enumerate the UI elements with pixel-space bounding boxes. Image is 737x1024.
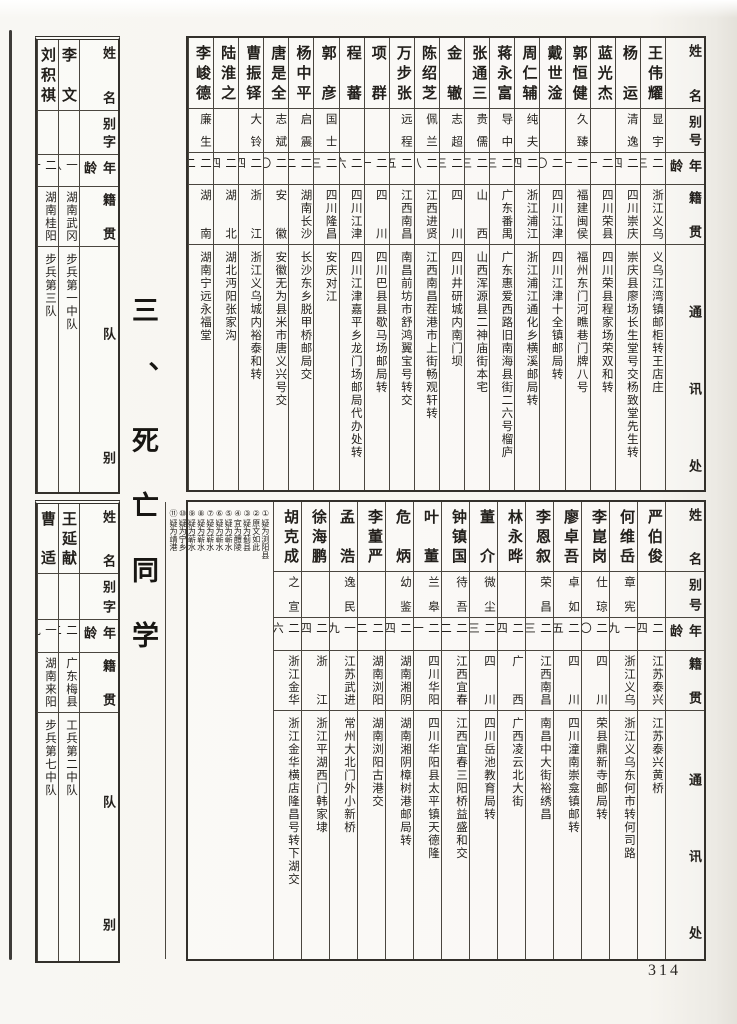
alias-cell: 幼鉴 [386, 572, 413, 618]
name-cell: 郭恒健 [566, 38, 590, 109]
footnote-item: ③ 疑为蓟县 [242, 509, 251, 551]
footnote-item: ⑧ 疑为蕲水 [197, 509, 206, 551]
alias-cell: 国士 [314, 109, 338, 153]
footnote-item: ② 原文如此 [252, 509, 261, 551]
roster-column: 程蕃 二六 四川江津 四川江津嘉平乡龙门场邮局代办处转 [339, 38, 364, 490]
footnote-number: ① [262, 509, 269, 519]
footnote-number: ⑤ [225, 509, 232, 519]
roster-column: 严伯俊 二四 江苏泰兴 江苏泰兴黄桥 [637, 502, 665, 959]
origin-cell: 山西 [465, 185, 489, 245]
roster-column: 叶董 兰皋 二一 四川华阳 四川华阳县太平镇天德隆 [413, 502, 441, 959]
roster-column: 杨运 清逸 二四 四川崇庆 崇庆县廖场长生堂号交杨致堂先生转 [615, 38, 640, 490]
name-cell: 钟镇国 [442, 502, 469, 572]
name-cell: 徐海鹏 [302, 502, 329, 572]
deceased-column: 曹适 一九 湖南来阳 步兵第七中队 [37, 504, 58, 961]
alias-cell [365, 109, 389, 153]
header-name-label: 姓名 [80, 504, 118, 574]
address-cell: 山西浑源县二神庙街本宅 [465, 245, 489, 490]
footnote-text: 疑为蕲水 [224, 519, 233, 551]
origin-cell: 浙江浦江 [515, 185, 539, 245]
footnote-number: ⑩ [179, 509, 186, 519]
address-cell: 常州大北门外小新桥 [330, 711, 357, 959]
roster-header-column: 姓名 别号 年龄 籍贯 通讯处 [665, 502, 704, 959]
alias-cell: 逸民 [330, 572, 357, 618]
deceased-header-column: 姓名 别字 年龄 籍贯 队别 [79, 504, 118, 961]
footnote-text: 疑为靖港 [169, 519, 178, 551]
origin-cell: 浙江金华 [274, 651, 301, 711]
footnote-number: ⑥ [216, 509, 223, 519]
name-cell: 李崑岗 [582, 502, 609, 572]
alias-cell: 佩兰 [415, 109, 439, 153]
age-cell: 二四 [515, 153, 539, 185]
address-cell: 长沙东乡脱甲桥邮局交 [289, 245, 313, 490]
roster-column: 万步张 远程 二五 江西南昌 南昌前坊市舒鸿翼宝号转交 [389, 38, 414, 490]
alias-cell [38, 574, 58, 620]
header-alias-label: 别字 [80, 574, 118, 620]
alias-cell: 远程 [390, 109, 414, 153]
age-cell: 二四 [638, 618, 665, 651]
address-cell: 崇庆县廖场长生堂号交杨致堂先生转 [616, 245, 640, 490]
age-cell: 二三 [490, 153, 514, 185]
address-cell: 四川华阳县太平镇天德隆 [414, 711, 441, 959]
section-title: 三、死亡同学 [124, 296, 163, 686]
name-cell: 叶董 [414, 502, 441, 572]
footnote-number: ② [253, 509, 260, 519]
header-age-label: 年龄 [80, 620, 118, 653]
address-cell: 四川巴县县歇马场邮局转 [365, 245, 389, 490]
alias-cell [638, 572, 665, 618]
origin-cell: 湖南湘阴 [386, 651, 413, 711]
age-cell: 二三 [470, 618, 497, 651]
bottom-right-roster-table: 姓名 别号 年龄 籍贯 通讯处 ① 疑为浏阳县 ② 原文如此 ③ 疑为 [186, 500, 706, 961]
roster-column: 钟镇国 待吾 二二 江西宜春 江西宜春三阳桥益盛和交 [441, 502, 469, 959]
age-cell: 二三 [440, 153, 464, 185]
roster-column: 李恩叙 荣昌 二三 江西南昌 南昌中大街裕绣昌 [525, 502, 553, 959]
alias-cell: 志超 [440, 109, 464, 153]
origin-cell: 四川荣县 [591, 185, 615, 245]
address-cell: 四川岳池教育局转 [470, 711, 497, 959]
age-cell: 二六 [340, 153, 364, 185]
origin-cell: 四川 [582, 651, 609, 711]
name-cell: 项群 [365, 38, 389, 109]
footnote-text: 疑为蕲水 [187, 519, 196, 551]
roster-column: 金辙 志超 二三 四川 四川井研城内南门坝 [439, 38, 464, 490]
roster-column: 唐是全 志斌 二〇 安徽 安徽无为县米市唐义兴号交 [263, 38, 288, 490]
alias-cell: 卓如 [554, 572, 581, 618]
unit-cell: 工兵第二中队 [59, 713, 79, 961]
alias-cell: 微尘 [470, 572, 497, 618]
age-cell: 二二 [59, 620, 79, 653]
header-origin-label: 籍贯 [666, 185, 704, 245]
alias-cell: 待吾 [442, 572, 469, 618]
origin-cell: 广东梅县 [59, 653, 79, 713]
roster-column: 孟浩 逸民 一九 江苏武进 常州大北门外小新桥 [329, 502, 357, 959]
address-cell: 四川江津十全镇邮局转 [540, 245, 564, 490]
age-cell: 二〇 [264, 153, 288, 185]
name-cell: 张通三 [465, 38, 489, 109]
alias-cell: 志斌 [264, 109, 288, 153]
roster-column: 李峻德 廉生 二二 湖南 湖南宁远永福堂 [188, 38, 213, 490]
header-origin-label: 籍贯 [80, 653, 118, 713]
age-cell: 二一 [38, 155, 58, 187]
alias-cell [214, 109, 238, 153]
roster-header-column: 姓名 别号 年龄 籍贯 通讯处 [665, 38, 704, 490]
origin-cell: 湖南浏阳 [358, 651, 385, 711]
origin-cell: 四川华阳 [414, 651, 441, 711]
roster-column: 何维岳 章宪 一九 浙江义乌 浙江义乌东何市转何司路 [609, 502, 637, 959]
origin-cell: 四川 [365, 185, 389, 245]
name-cell: 王伟耀 [641, 38, 665, 109]
origin-cell: 浙江义乌 [610, 651, 637, 711]
name-cell: 何维岳 [610, 502, 637, 572]
age-cell: 一九 [330, 618, 357, 651]
roster-column: 项群 二一 四川 四川巴县县歇马场邮局转 [364, 38, 389, 490]
footnote-item: ⑦ 疑为蕲水 [206, 509, 215, 551]
age-cell: 二一 [566, 153, 590, 185]
roster-column: 郭恒健 久臻 二一 福建闽侯 福州东门河瞧巷门牌八号 [565, 38, 590, 490]
age-cell: 一九 [38, 620, 58, 653]
roster-column: 胡克成 之宣 二六 浙江金华 浙江金华横店隆昌号转下湖交 [273, 502, 301, 959]
header-name-label: 姓名 [666, 38, 704, 109]
footnote-number: ⑨ [188, 509, 195, 519]
address-cell: 湖南湘阴樟树港邮局转 [386, 711, 413, 959]
footnote-number: ④ [234, 509, 241, 519]
alias-cell: 清逸 [616, 109, 640, 153]
origin-cell: 江西南昌 [526, 651, 553, 711]
footnote-text: 疑为蕲水 [215, 519, 224, 551]
roster-column: 危炳 幼鉴 二四 湖南湘阴 湖南湘阴樟树港邮局转 [385, 502, 413, 959]
name-cell: 程蕃 [340, 38, 364, 109]
bottom-left-deceased-table: 姓名 别字 年龄 籍贯 队别 王延献 二二 广东梅县 工兵第二中队 曹适 一九 … [35, 500, 120, 963]
age-cell: 二二 [189, 153, 213, 185]
origin-cell: 湖南来阳 [38, 653, 58, 713]
name-cell: 李恩叙 [526, 502, 553, 572]
unit-cell: 步兵第三队 [38, 247, 58, 492]
address-cell: 浙江金华横店隆昌号转下湖交 [274, 711, 301, 959]
age-cell: 二一 [591, 153, 615, 185]
alias-cell: 启震 [289, 109, 313, 153]
roster-column: 董介 微尘 二三 四川 四川岳池教育局转 [469, 502, 497, 959]
name-cell: 唐是全 [264, 38, 288, 109]
age-cell: 二一 [414, 618, 441, 651]
name-cell: 曹适 [38, 504, 58, 574]
name-cell: 杨中平 [289, 38, 313, 109]
alias-cell [340, 109, 364, 153]
name-cell: 陈绍芝 [415, 38, 439, 109]
address-cell: 浙江浦江通化乡横溪邮局转 [515, 245, 539, 490]
alias-cell: 显宇 [641, 109, 665, 153]
origin-cell: 四川 [554, 651, 581, 711]
footnote-item: ⑥ 疑为蕲水 [215, 509, 224, 551]
age-cell: 二二 [358, 618, 385, 651]
origin-cell: 湖北 [214, 185, 238, 245]
alias-cell: 纯夫 [515, 109, 539, 153]
unit-cell: 步兵第一中队 [59, 247, 79, 492]
origin-cell: 浙江 [239, 185, 263, 245]
alias-cell: 大铃 [239, 109, 263, 153]
address-cell: 浙江义乌东何市转何司路 [610, 711, 637, 959]
alias-cell: 章宪 [610, 572, 637, 618]
roster-column: 蒋永富 导中 二三 广东番禺 广东惠爱西路旧南海县街二六号榴庐 [489, 38, 514, 490]
address-cell: 广东惠爱西路旧南海县街二六号榴庐 [490, 245, 514, 490]
footnote-number: ⑧ [198, 509, 205, 519]
name-cell: 周仁辅 [515, 38, 539, 109]
footnote-item: ⑤ 疑为蕲水 [224, 509, 233, 551]
alias-cell [59, 111, 79, 155]
deceased-header-column: 姓名 别字 年龄 籍贯 队别 [79, 40, 118, 492]
name-cell: 胡克成 [274, 502, 301, 572]
age-cell: 二〇 [582, 618, 609, 651]
age-cell: 一九 [610, 618, 637, 651]
name-cell: 危炳 [386, 502, 413, 572]
name-cell: 曹振铎 [239, 38, 263, 109]
deceased-column: 刘积祺 二一 湖南桂阳 步兵第三队 [37, 40, 58, 492]
name-cell: 蒋永富 [490, 38, 514, 109]
roster-column: 林永晔 二四 广西 广西凌云北大街 [497, 502, 525, 959]
address-cell: 江西宜春三阳桥益盛和交 [442, 711, 469, 959]
age-cell: 二四 [302, 618, 329, 651]
alias-cell: 荣昌 [526, 572, 553, 618]
address-cell: 四川潼南崇龛镇邮转 [554, 711, 581, 959]
address-cell: 湖南宁远永福堂 [189, 245, 213, 490]
roster-column: 周仁辅 纯夫 二四 浙江浦江 浙江浦江通化乡横溪邮局转 [514, 38, 539, 490]
address-cell: 福州东门河瞧巷门牌八号 [566, 245, 590, 490]
roster-column: 李崑岗 仕琼 二〇 四川 荣县鼎新寺邮局转 [581, 502, 609, 959]
name-cell: 万步张 [390, 38, 414, 109]
name-cell: 郭彦 [314, 38, 338, 109]
origin-cell: 湖南桂阳 [38, 187, 58, 247]
address-cell: 广西凌云北大街 [498, 711, 525, 959]
roster-column: 徐海鹏 二四 浙江 浙江平湖西门韩家埭 [301, 502, 329, 959]
deceased-column: 李文 一八 湖南武冈 步兵第一中队 [58, 40, 79, 492]
header-origin-label: 籍贯 [666, 651, 704, 711]
alias-cell [540, 109, 564, 153]
origin-cell: 江苏泰兴 [638, 651, 665, 711]
header-unit-label: 队别 [80, 247, 118, 492]
origin-cell: 广西 [498, 651, 525, 711]
origin-cell: 四川崇庆 [616, 185, 640, 245]
age-cell: 二二 [289, 153, 313, 185]
age-cell: 二六 [274, 618, 301, 651]
roster-column: 戴世淦 二〇 四川江津 四川江津十全镇邮局转 [539, 38, 564, 490]
name-cell: 蓝光杰 [591, 38, 615, 109]
footnotes-cell: ① 疑为浏阳县 ② 原文如此 ③ 疑为蓟县 ④ 宜为醴陵 [165, 502, 273, 959]
origin-cell: 福建闽侯 [566, 185, 590, 245]
roster-column: 陈绍芝 佩兰 二八 江西进贤 江西南昌茬港市上街畅观轩转 [414, 38, 439, 490]
roster-column: 郭彦 国士 二三 四川隆昌 安庆对江 [313, 38, 338, 490]
age-cell: 二〇 [540, 153, 564, 185]
age-cell: 二三 [465, 153, 489, 185]
address-cell: 四川江津嘉平乡龙门场邮局代办处转 [340, 245, 364, 490]
name-cell: 杨运 [616, 38, 640, 109]
origin-cell: 江西南昌 [390, 185, 414, 245]
origin-cell: 广东番禺 [490, 185, 514, 245]
address-cell: 荣县鼎新寺邮局转 [582, 711, 609, 959]
footnote-number: ③ [243, 509, 250, 519]
header-alias-label: 别号 [666, 109, 704, 153]
origin-cell: 湖南 [189, 185, 213, 245]
footnote-item: ⑪ 疑为靖港 [169, 509, 178, 551]
roster-column: 张通三 贵儒 二三 山西 山西浑源县二神庙街本宅 [464, 38, 489, 490]
footnote-text: 疑为浏阳县 [261, 519, 270, 559]
top-left-deceased-table: 姓名 别字 年龄 籍贯 队别 李文 一八 湖南武冈 步兵第一中队 刘积祺 二一 … [35, 36, 120, 494]
origin-cell: 四川隆昌 [314, 185, 338, 245]
alias-cell: 贵儒 [465, 109, 489, 153]
origin-cell: 安徽 [264, 185, 288, 245]
origin-cell: 湖南武冈 [59, 187, 79, 247]
footnote-text: 原文如此 [252, 519, 261, 551]
footnote-text: 宜为醴陵 [233, 519, 242, 551]
name-cell: 陆淮之 [214, 38, 238, 109]
header-age-label: 年龄 [80, 155, 118, 187]
footnote-text: 疑为蕲水 [206, 519, 215, 551]
name-cell: 金辙 [440, 38, 464, 109]
name-cell: 廖卓吾 [554, 502, 581, 572]
age-cell: 二三 [641, 153, 665, 185]
header-alias-label: 别字 [80, 111, 118, 155]
footnote-number: ⑦ [207, 509, 214, 519]
age-cell: 二三 [526, 618, 553, 651]
age-cell: 二五 [554, 618, 581, 651]
name-cell: 严伯俊 [638, 502, 665, 572]
footnote-item: ⑩ 疑为宁乡 [178, 509, 187, 551]
deceased-column: 王延献 二二 广东梅县 工兵第二中队 [58, 504, 79, 961]
footnote-item: ① 疑为浏阳县 [261, 509, 270, 559]
address-cell: 浙江义乌城内裕泰和转 [239, 245, 263, 490]
roster-column: 王伟耀 显宇 二三 浙江义乌 义乌江湾镇邮柜转王店庄 [640, 38, 665, 490]
name-cell: 李文 [59, 40, 79, 111]
header-address-label: 通讯处 [666, 245, 704, 490]
origin-cell: 四川 [470, 651, 497, 711]
roster-column: 曹振铎 大铃 二四 浙江 浙江义乌城内裕泰和转 [238, 38, 263, 490]
alias-cell [38, 111, 58, 155]
footnote-item: ④ 宜为醴陵 [233, 509, 242, 551]
age-cell: 二八 [415, 153, 439, 185]
origin-cell: 四川江津 [540, 185, 564, 245]
origin-cell: 江西进贤 [415, 185, 439, 245]
alias-cell: 兰皋 [414, 572, 441, 618]
header-name-label: 姓名 [666, 502, 704, 572]
age-cell: 二四 [386, 618, 413, 651]
name-cell: 董介 [470, 502, 497, 572]
address-cell: 江西南昌茬港市上街畅观轩转 [415, 245, 439, 490]
origin-cell: 湖南长沙 [289, 185, 313, 245]
address-cell: 四川荣县程家场荣双和转 [591, 245, 615, 490]
address-cell: 义乌江湾镇邮柜转王店庄 [641, 245, 665, 490]
alias-cell: 导中 [490, 109, 514, 153]
age-cell: 二二 [442, 618, 469, 651]
alias-cell [591, 109, 615, 153]
address-cell: 四川井研城内南门坝 [440, 245, 464, 490]
address-cell: 南昌前坊市舒鸿翼宝号转交 [390, 245, 414, 490]
address-cell: 江苏泰兴黄桥 [638, 711, 665, 959]
roster-column: 杨中平 启震 二二 湖南长沙 长沙东乡脱甲桥邮局交 [288, 38, 313, 490]
header-origin-label: 籍贯 [80, 187, 118, 247]
alias-cell: 久臻 [566, 109, 590, 153]
age-cell: 二四 [239, 153, 263, 185]
page-number: 314 [648, 962, 681, 980]
alias-cell: 仕琼 [582, 572, 609, 618]
alias-cell [358, 572, 385, 618]
origin-cell: 四川江津 [340, 185, 364, 245]
age-cell: 二三 [314, 153, 338, 185]
header-address-label: 通讯处 [666, 711, 704, 959]
roster-column: 蓝光杰 二一 四川荣县 四川荣县程家场荣双和转 [590, 38, 615, 490]
name-cell: 王延献 [59, 504, 79, 574]
address-cell: 南昌中大街裕绣昌 [526, 711, 553, 959]
name-cell: 孟浩 [330, 502, 357, 572]
footnote-number: ⑪ [170, 509, 178, 519]
footnote-item: ⑨ 疑为蕲水 [187, 509, 196, 551]
footnote-text: 疑为蕲水 [197, 519, 206, 551]
age-cell: 二四 [214, 153, 238, 185]
roster-column: 李董严 二二 湖南浏阳 湖南浏阳古港交 [357, 502, 385, 959]
name-cell: 戴世淦 [540, 38, 564, 109]
origin-cell: 江西宜春 [442, 651, 469, 711]
alias-cell [498, 572, 525, 618]
alias-cell [59, 574, 79, 620]
origin-cell: 浙江义乌 [641, 185, 665, 245]
header-age-label: 年龄 [666, 153, 704, 185]
alias-cell: 之宣 [274, 572, 301, 618]
origin-cell: 浙江 [302, 651, 329, 711]
roster-column: 廖卓吾 卓如 二五 四川 四川潼南崇龛镇邮转 [553, 502, 581, 959]
footnote-text: 疑为蓟县 [243, 519, 252, 551]
unit-cell: 步兵第七中队 [38, 713, 58, 961]
header-alias-label: 别号 [666, 572, 704, 618]
scan-page: 姓名 别号 年龄 籍贯 通讯处 王伟耀 显宇 二三 浙江义乌 义乌江湾镇邮柜转王… [0, 0, 737, 1024]
header-unit-label: 队别 [80, 713, 118, 961]
address-cell: 湖南浏阳古港交 [358, 711, 385, 959]
alias-cell: 廉生 [189, 109, 213, 153]
binding-edge-line [9, 30, 12, 960]
address-cell: 湖北沔阳张家沟 [214, 245, 238, 490]
age-cell: 二四 [616, 153, 640, 185]
name-cell: 刘积祺 [38, 40, 58, 111]
header-name-label: 姓名 [80, 40, 118, 111]
name-cell: 林永晔 [498, 502, 525, 572]
address-cell: 安庆对江 [314, 245, 338, 490]
address-cell: 安徽无为县米市唐义兴号交 [264, 245, 288, 490]
age-cell: 二一 [365, 153, 389, 185]
origin-cell: 江苏武进 [330, 651, 357, 711]
age-cell: 一八 [59, 155, 79, 187]
footnote-text: 疑为宁乡 [178, 519, 187, 551]
top-right-roster-table: 姓名 别号 年龄 籍贯 通讯处 王伟耀 显宇 二三 浙江义乌 义乌江湾镇邮柜转王… [186, 36, 706, 492]
address-cell: 浙江平湖西门韩家埭 [302, 711, 329, 959]
age-cell: 二四 [498, 618, 525, 651]
roster-column: 陆淮之 二四 湖北 湖北沔阳张家沟 [213, 38, 238, 490]
alias-cell [302, 572, 329, 618]
name-cell: 李董严 [358, 502, 385, 572]
origin-cell: 四川 [440, 185, 464, 245]
age-cell: 二五 [390, 153, 414, 185]
header-age-label: 年龄 [666, 618, 704, 651]
name-cell: 李峻德 [189, 38, 213, 109]
